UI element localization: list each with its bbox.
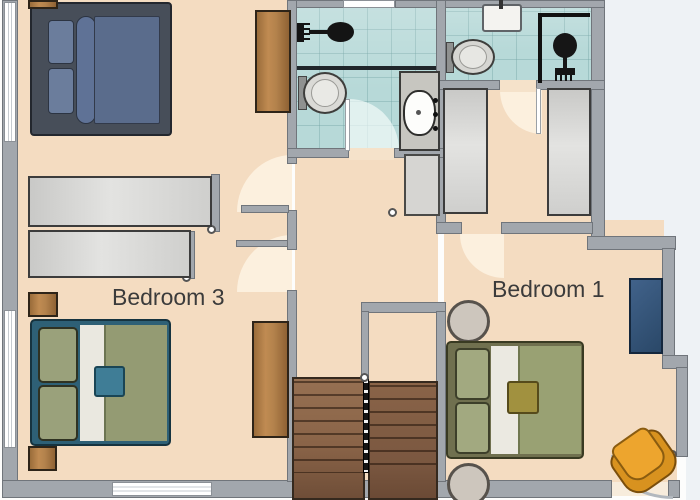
stair-treads-right — [370, 385, 436, 469]
shower2-sprayer-icon — [555, 68, 575, 81]
stair-treads-left — [294, 381, 363, 473]
toilet2-bowl-rim — [459, 45, 487, 69]
wall-dressing-south-b — [501, 222, 593, 234]
round-pouf-top — [447, 300, 490, 343]
wall-right-exterior-low — [676, 367, 688, 457]
wardrobe-gray-d — [547, 88, 591, 216]
window-bathroom-top — [343, 0, 395, 8]
outside-area-right-bottom — [686, 358, 700, 500]
wall-right-exterior-top — [591, 0, 605, 248]
wall-closet-stub-d — [236, 240, 288, 247]
door-leaf-bathroom2 — [536, 88, 541, 134]
washbasin-tap-icon — [499, 0, 503, 9]
window-bottom — [112, 482, 212, 496]
shower-head-icon — [327, 22, 354, 42]
bed-olive-cushion — [507, 381, 539, 414]
sideboard-wood — [252, 321, 289, 438]
stair-railing-hinge — [360, 373, 369, 382]
outside-area-right-mid — [674, 246, 700, 360]
wall-stairs-top — [361, 302, 446, 313]
shower-arm-icon — [309, 30, 329, 34]
faucet-dot — [433, 98, 438, 103]
door-hinge-hall — [388, 208, 397, 217]
shower-divider — [297, 66, 436, 70]
hall-cabinet — [404, 154, 440, 216]
washbasin-drain — [416, 110, 421, 115]
outside-area-right-top — [603, 0, 700, 248]
door-opening-bathroom2 — [500, 80, 536, 92]
desk-navy — [629, 278, 663, 354]
staircase — [292, 377, 438, 500]
bed-olive-pillow-2 — [455, 402, 490, 454]
wardrobe-gray-c — [443, 88, 488, 214]
door-leaf-bathroom1 — [345, 99, 350, 151]
wall-closet-stub-c — [241, 205, 289, 213]
door-opening-bathroom1 — [349, 148, 394, 160]
round-pouf-bottom — [447, 463, 490, 500]
bed-navy-blanket-roll — [76, 16, 96, 124]
bed-teal-pillow — [38, 327, 78, 383]
toilet-bowl — [303, 72, 347, 114]
nightstand-bottom — [28, 446, 57, 471]
wardrobe-sliding-b — [28, 230, 191, 278]
bed-olive-pillow — [455, 348, 490, 400]
bed-teal-cushion — [94, 366, 125, 397]
floor-plan: Bedroom 3 Bedroom 1 — [0, 0, 700, 500]
shower-enclosure-frame-left — [538, 13, 542, 83]
nightstand-mid — [28, 292, 58, 317]
wardrobe-wood — [255, 10, 291, 113]
nightstand-top — [28, 0, 58, 9]
bed-navy-pillow-2 — [48, 68, 74, 114]
bed-navy — [30, 2, 172, 136]
faucet-dot-2 — [433, 112, 438, 117]
wall-bathroom1-south-a — [287, 148, 349, 158]
bed-navy-pillow — [48, 20, 74, 64]
bed-olive — [446, 341, 584, 459]
toilet2-bowl — [451, 39, 495, 75]
bed-teal-pillow-2 — [38, 385, 78, 441]
wall-stairs-thin — [361, 311, 369, 379]
wall-closet-stub-a — [211, 174, 220, 232]
stair-railing — [363, 379, 369, 473]
toilet-bowl-rim — [311, 79, 339, 107]
room-label-bedroom3: Bedroom 3 — [112, 284, 225, 311]
bed-navy-duvet — [94, 16, 160, 124]
bed-teal — [30, 319, 171, 446]
shower-sprayer-icon — [297, 23, 310, 42]
shower-enclosure-frame-top — [538, 13, 590, 17]
room-label-bedroom1: Bedroom 1 — [492, 276, 605, 303]
wall-hall-west-b — [287, 210, 297, 250]
wall-dressing-south-a — [436, 222, 462, 234]
wall-right-exterior-mid — [662, 248, 675, 358]
faucet-dot-3 — [433, 126, 438, 131]
window-left-bottom — [4, 310, 16, 448]
window-left-top — [4, 2, 16, 142]
wardrobe-sliding-a — [28, 176, 212, 227]
